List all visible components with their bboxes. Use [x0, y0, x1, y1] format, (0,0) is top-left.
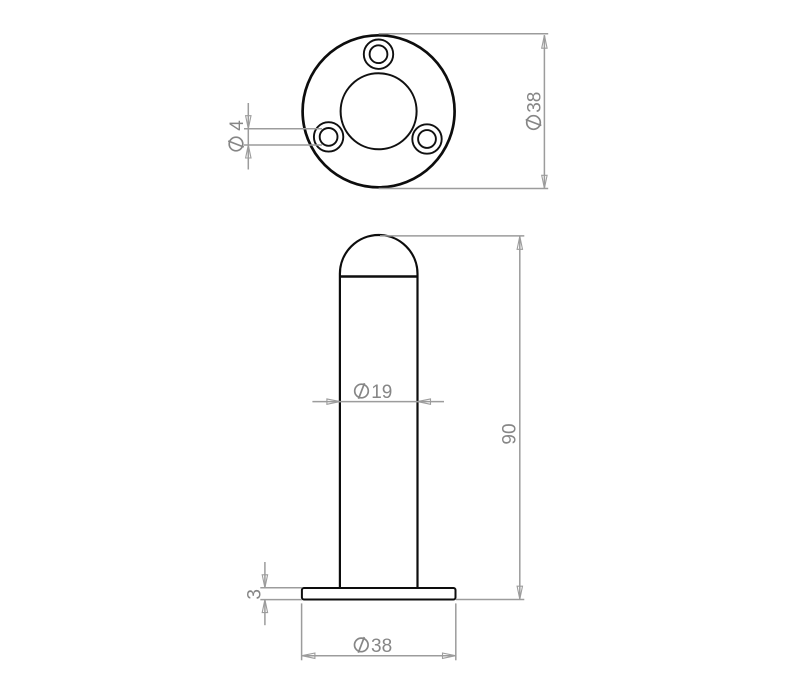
- svg-text:4: 4: [227, 120, 248, 131]
- svg-text:38: 38: [371, 636, 392, 657]
- svg-text:19: 19: [371, 382, 392, 403]
- svg-text:3: 3: [245, 589, 266, 600]
- svg-text:90: 90: [499, 423, 520, 444]
- svg-text:38: 38: [524, 92, 545, 113]
